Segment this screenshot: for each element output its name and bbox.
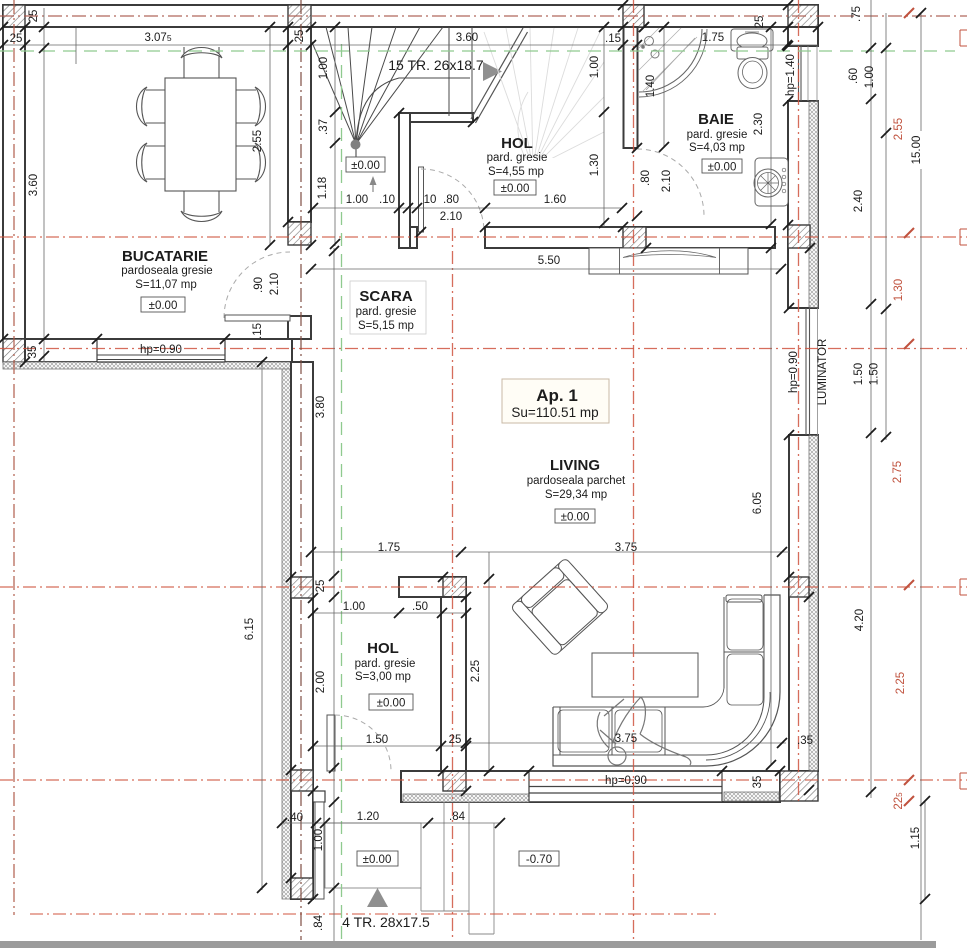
svg-text:2.55: 2.55 xyxy=(252,130,264,152)
svg-text:2.10: 2.10 xyxy=(269,273,281,295)
svg-text:1.40: 1.40 xyxy=(645,75,657,97)
svg-text:15 TR. 26x18.7: 15 TR. 26x18.7 xyxy=(388,57,484,73)
svg-text:1.00: 1.00 xyxy=(864,66,876,88)
svg-text:1.60: 1.60 xyxy=(544,194,566,206)
svg-text:1.00: 1.00 xyxy=(346,194,368,206)
svg-text:.80: .80 xyxy=(640,170,652,186)
svg-text:25: 25 xyxy=(10,33,23,45)
svg-text:S=4,55 mp: S=4,55 mp xyxy=(488,166,544,178)
svg-text:1.75: 1.75 xyxy=(702,32,724,44)
svg-text:35: 35 xyxy=(752,776,764,789)
svg-text:3.60: 3.60 xyxy=(28,174,40,196)
svg-text:±0.00: ±0.00 xyxy=(377,698,406,710)
svg-text:2.10: 2.10 xyxy=(440,211,462,223)
svg-text:2.25: 2.25 xyxy=(470,660,482,682)
svg-text:.37: .37 xyxy=(318,119,330,135)
svg-text:.10: .10 xyxy=(379,194,395,206)
svg-text:25: 25 xyxy=(294,30,306,43)
svg-text:.35: .35 xyxy=(797,735,813,747)
svg-text:1.50: 1.50 xyxy=(869,363,881,385)
svg-text:BAIE: BAIE xyxy=(698,111,734,128)
svg-text:225: 225 xyxy=(893,792,905,810)
svg-text:Su=110.51 mp: Su=110.51 mp xyxy=(511,405,598,420)
svg-text:1.50: 1.50 xyxy=(366,734,388,746)
svg-text:hp=0.90: hp=0.90 xyxy=(605,775,647,787)
svg-text:1.00: 1.00 xyxy=(589,56,601,78)
svg-text:1.30: 1.30 xyxy=(589,154,601,176)
svg-text:6.15: 6.15 xyxy=(244,618,256,640)
svg-text:6.05: 6.05 xyxy=(752,492,764,514)
svg-text:.60: .60 xyxy=(848,68,860,84)
svg-text:S=5,15 mp: S=5,15 mp xyxy=(358,320,414,332)
svg-text:1.00: 1.00 xyxy=(343,601,365,613)
svg-text:S=29,34 mp: S=29,34 mp xyxy=(545,489,607,501)
svg-text:.84: .84 xyxy=(313,914,325,931)
svg-text:1.15: 1.15 xyxy=(910,827,922,849)
svg-text:pard. gresie: pard. gresie xyxy=(356,306,417,318)
svg-text:25: 25 xyxy=(754,16,766,29)
svg-text:2.00: 2.00 xyxy=(315,671,327,693)
svg-text:25: 25 xyxy=(28,10,40,23)
svg-text:±0.00: ±0.00 xyxy=(708,162,737,174)
svg-text:2.25: 2.25 xyxy=(895,672,907,694)
svg-text:1.00: 1.00 xyxy=(313,829,325,851)
svg-text:10: 10 xyxy=(424,194,437,206)
svg-text:2.40: 2.40 xyxy=(853,190,865,212)
svg-text:15.00: 15.00 xyxy=(911,136,923,165)
svg-text:hp=0.90: hp=0.90 xyxy=(140,344,182,356)
svg-text:pardoseala gresie: pardoseala gresie xyxy=(121,265,212,277)
svg-text:LIVING: LIVING xyxy=(550,457,600,474)
svg-text:.40: .40 xyxy=(287,812,303,824)
svg-text:1.20: 1.20 xyxy=(357,811,379,823)
svg-text:±0.00: ±0.00 xyxy=(149,300,178,312)
svg-text:.84: .84 xyxy=(449,811,466,823)
svg-text:3.075: 3.075 xyxy=(144,32,171,44)
svg-text:pardoseala parchet: pardoseala parchet xyxy=(527,475,626,487)
svg-text:±0.00: ±0.00 xyxy=(351,160,380,172)
svg-text:2.10: 2.10 xyxy=(661,170,673,192)
svg-text:±0.00: ±0.00 xyxy=(561,512,590,524)
svg-text:4.20: 4.20 xyxy=(854,609,866,631)
svg-text:1.30: 1.30 xyxy=(893,279,905,301)
svg-text:1.75: 1.75 xyxy=(378,542,400,554)
svg-text:4 TR. 28x17.5: 4 TR. 28x17.5 xyxy=(342,914,430,930)
svg-text:2.30: 2.30 xyxy=(753,113,765,135)
svg-text:3.80: 3.80 xyxy=(315,396,327,418)
svg-text:pard. gresie: pard. gresie xyxy=(687,129,748,141)
svg-text:S=4,03 mp: S=4,03 mp xyxy=(689,142,745,154)
svg-text:5.50: 5.50 xyxy=(538,255,560,267)
svg-text:.80: .80 xyxy=(443,194,459,206)
svg-text:Ap. 1: Ap. 1 xyxy=(536,386,578,405)
svg-text:.90: .90 xyxy=(253,277,265,293)
svg-text:3.75: 3.75 xyxy=(615,733,637,745)
svg-text:pard. gresie: pard. gresie xyxy=(355,658,416,670)
svg-text:S=11,07 mp: S=11,07 mp xyxy=(135,279,196,291)
svg-text:3.60: 3.60 xyxy=(456,32,478,44)
svg-text:hp=1.40: hp=1.40 xyxy=(785,54,797,96)
svg-text:2.55: 2.55 xyxy=(893,118,905,140)
svg-text:.50: .50 xyxy=(412,601,428,613)
svg-text:SCARA: SCARA xyxy=(359,288,413,305)
svg-text:1.50: 1.50 xyxy=(853,363,865,385)
svg-text:HOL: HOL xyxy=(367,640,399,657)
svg-text:1.18: 1.18 xyxy=(317,177,329,199)
svg-text:.75: .75 xyxy=(851,6,863,22)
svg-text:-0.70: -0.70 xyxy=(526,854,552,866)
svg-text:pard. gresie: pard. gresie xyxy=(487,152,548,164)
svg-text:1.00: 1.00 xyxy=(318,57,330,79)
svg-text:.15: .15 xyxy=(605,33,621,45)
svg-text:hp=0.90: hp=0.90 xyxy=(788,351,800,393)
svg-text:3.75: 3.75 xyxy=(615,542,637,554)
svg-text:S=3,00 mp: S=3,00 mp xyxy=(355,671,411,683)
svg-text:±0.00: ±0.00 xyxy=(501,183,530,195)
svg-text:25: 25 xyxy=(315,580,327,593)
svg-text:HOL: HOL xyxy=(501,135,533,152)
svg-text:±0.00: ±0.00 xyxy=(363,854,392,866)
svg-text:.15: .15 xyxy=(252,323,264,339)
svg-text:2.75: 2.75 xyxy=(892,461,904,483)
svg-text:LUMINATOR: LUMINATOR xyxy=(817,339,829,406)
svg-text:35: 35 xyxy=(27,346,39,359)
svg-text:BUCATARIE: BUCATARIE xyxy=(122,248,208,265)
